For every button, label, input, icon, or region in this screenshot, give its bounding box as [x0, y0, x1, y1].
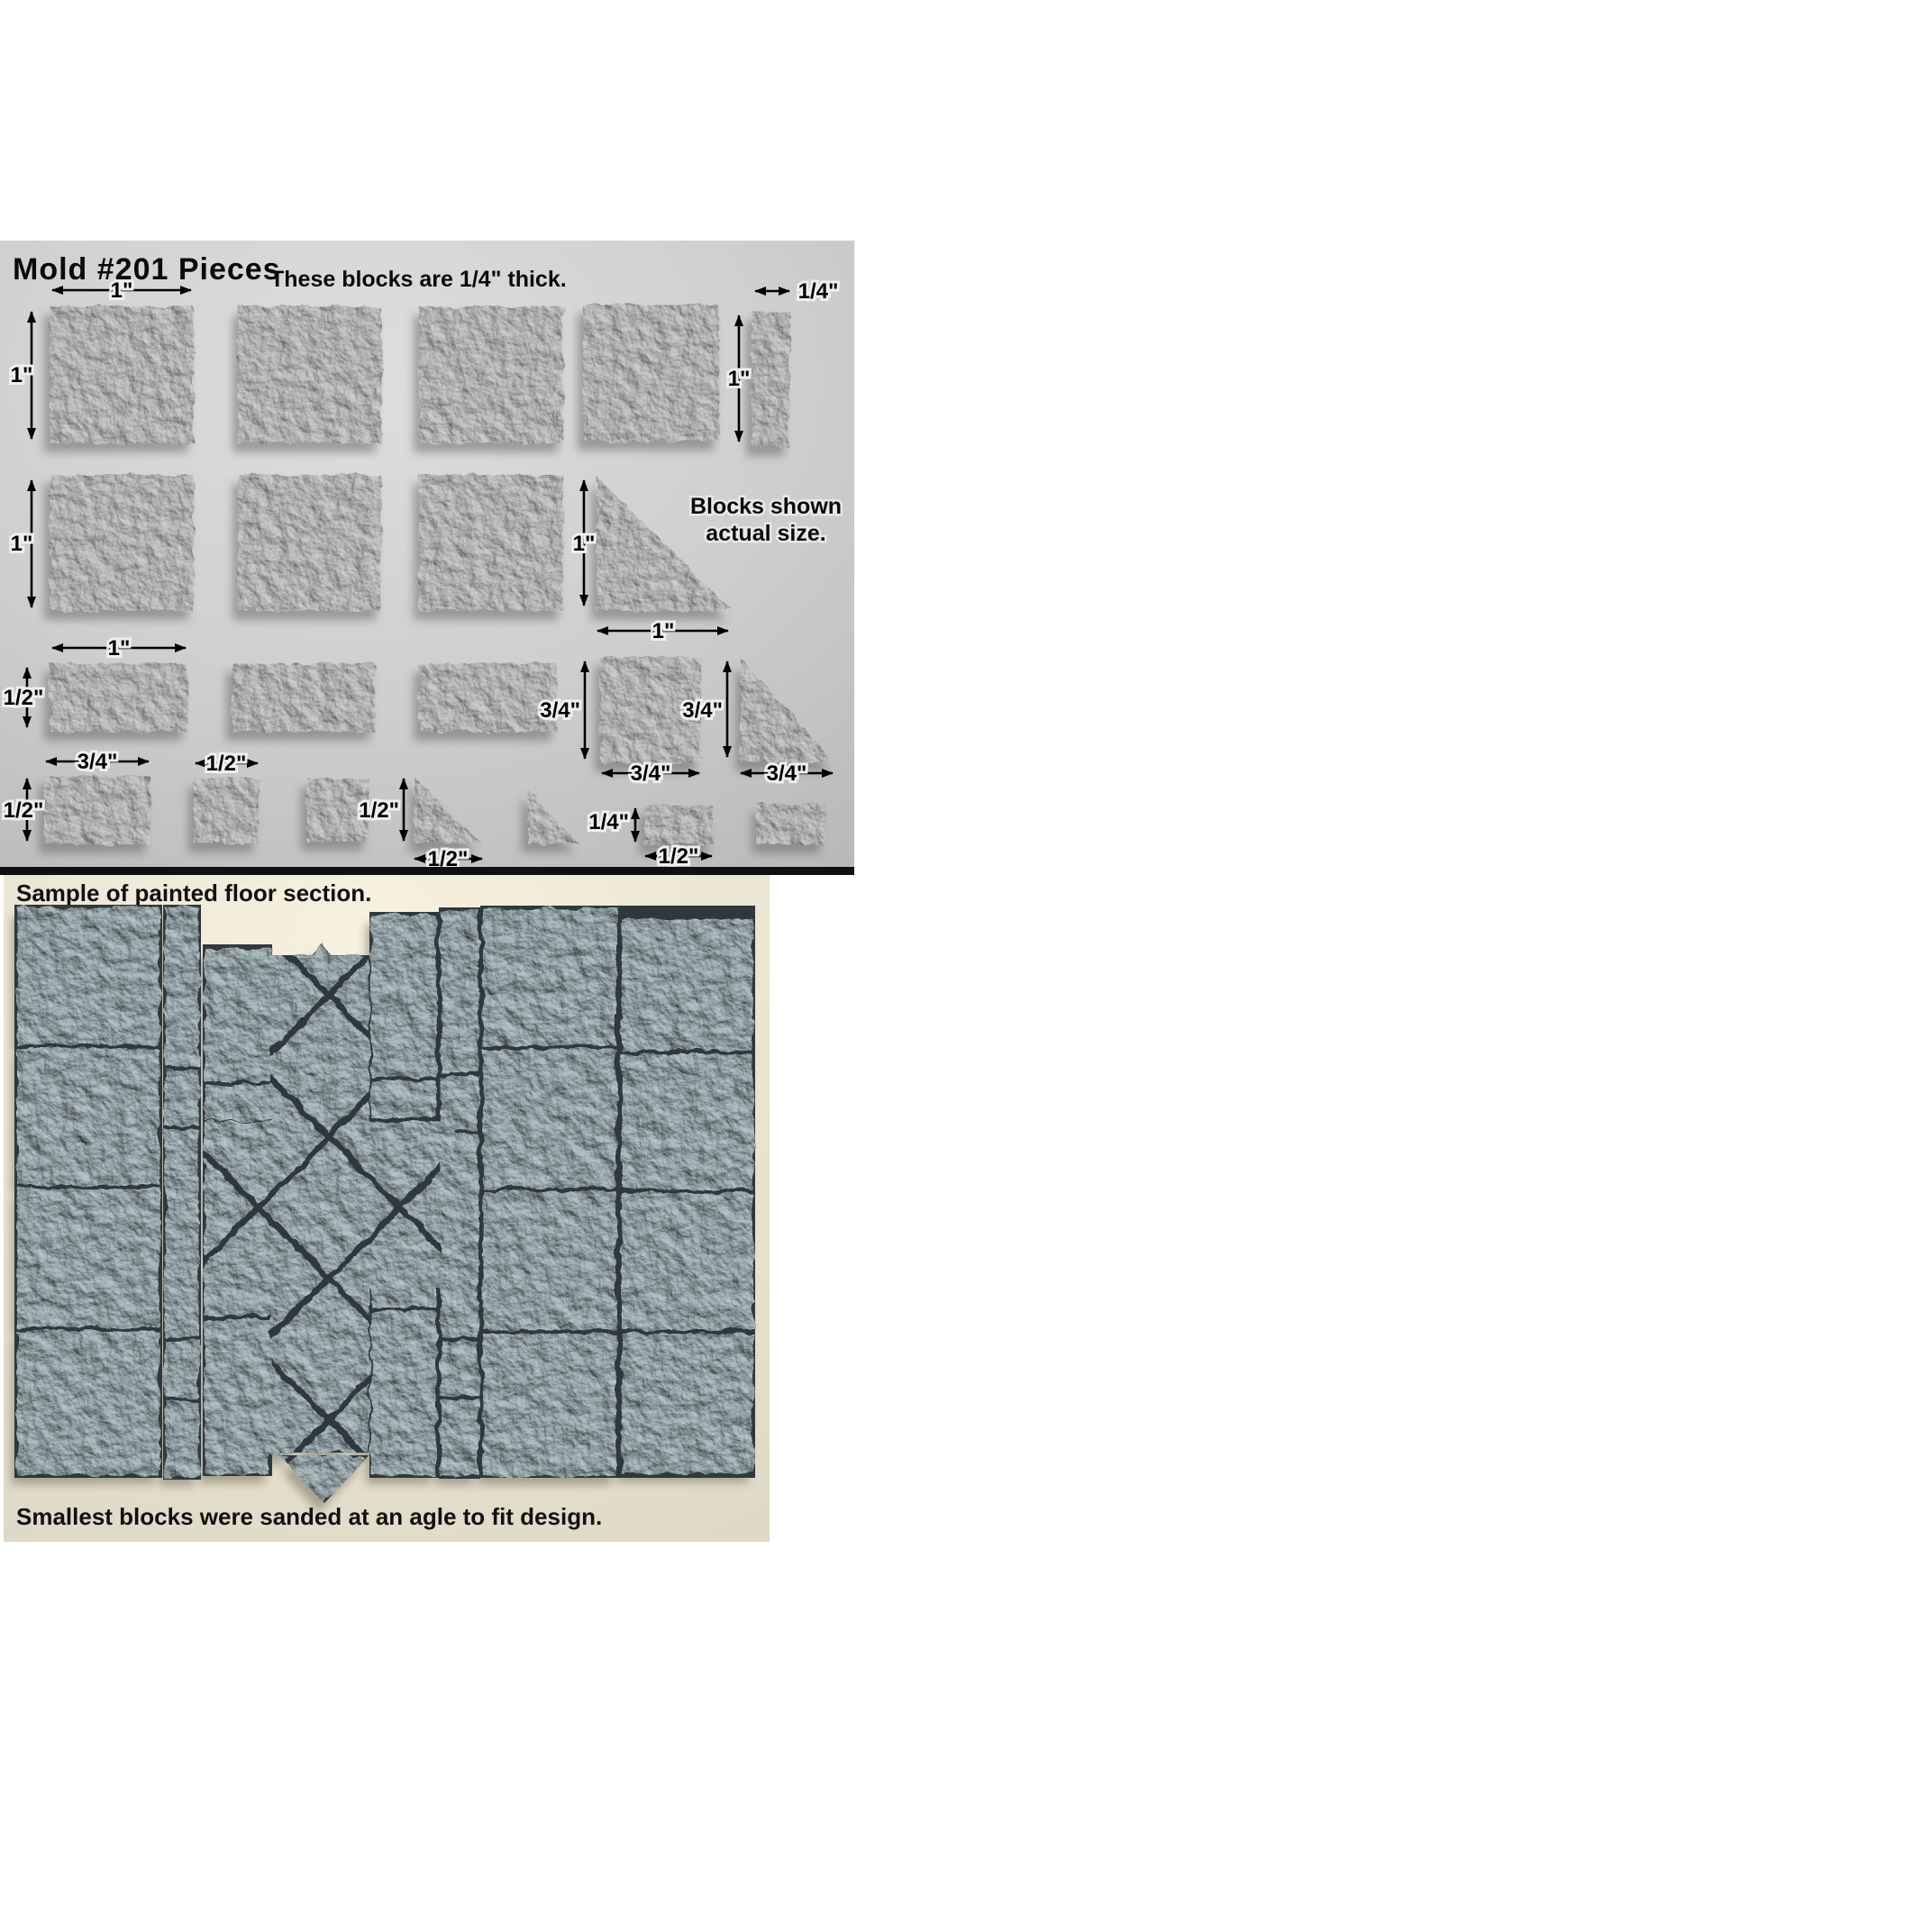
dim-label-r4-sq-width: 1/2": [206, 752, 247, 776]
dim-label-r4-tri-height: 1/2": [359, 798, 399, 823]
painted-stones: [0, 859, 753, 1557]
caption-bottom: Smallest blocks were sanded at an agle t…: [16, 1503, 602, 1530]
dim-label-r4-rect-width: 3/4": [77, 750, 118, 774]
dim-label-tri34-height: 3/4": [682, 698, 723, 723]
dim-label-r1-height: 1": [11, 363, 33, 387]
dim-label-strip-height: 1": [728, 367, 751, 391]
dim-label-tri-width: 1": [652, 619, 675, 643]
dim-label-small-height: 1/4": [588, 810, 629, 834]
page: Mold #201 Pieces These blocks are 1/4" t…: [0, 0, 1932, 1932]
dim-label-r3-width: 1": [108, 636, 131, 661]
dim-label-sq34-height: 3/4": [540, 698, 580, 723]
dim-label-strip-width: 1/4": [798, 279, 839, 304]
dim-label-r1-width: 1": [111, 278, 133, 303]
caption-top: Sample of painted floor section.: [16, 879, 371, 907]
dim-label-small-width: 1/2": [659, 844, 699, 869]
photo-composite: Mold #201 Pieces These blocks are 1/4" t…: [0, 0, 1932, 1932]
top-photo-panel: Mold #201 Pieces These blocks are 1/4" t…: [0, 241, 854, 875]
dim-label-r3-height: 1/2": [4, 686, 44, 710]
dim-label-tri-height: 1": [573, 532, 596, 556]
note-line-2: actual size.: [706, 521, 825, 546]
panel-title: Mold #201 Pieces: [13, 252, 281, 287]
note-line-1: Blocks shown: [690, 494, 842, 519]
photo-divider: [0, 867, 854, 875]
dim-label-tri34-width: 3/4": [767, 761, 807, 786]
panel-subtitle: These blocks are 1/4" thick.: [270, 267, 567, 292]
dim-label-r4-height: 1/2": [4, 798, 44, 823]
bottom-photo-panel: Sample of painted floor section. Smalles…: [0, 859, 770, 1566]
dim-label-sq34-width: 3/4": [631, 761, 671, 786]
dim-label-r2-height: 1": [11, 532, 33, 556]
